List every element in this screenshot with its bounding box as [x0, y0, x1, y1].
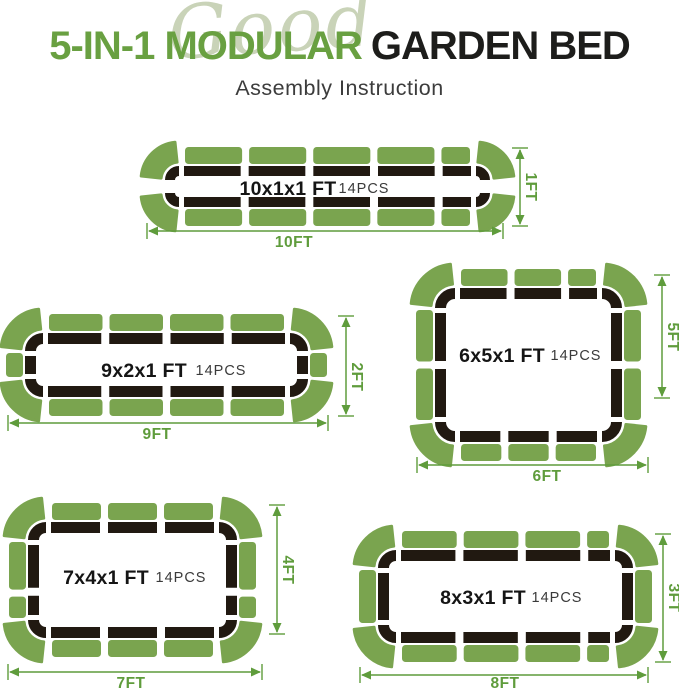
v-dimension-arrow: 3FT: [655, 534, 679, 662]
arrowhead: [273, 506, 282, 516]
dimension-label: 6FT: [532, 468, 561, 485]
bottom-panel: [231, 399, 285, 416]
frame-corner: [170, 193, 179, 202]
arrowhead: [342, 317, 351, 327]
dimension-label: 7FT: [116, 675, 145, 690]
right-panel: [624, 369, 641, 421]
arrowhead: [637, 461, 647, 470]
bottom-panel: [249, 209, 306, 226]
bed-size-label: 8x3x1 FT: [440, 587, 526, 609]
arrowhead: [516, 149, 525, 159]
bed-pcs-label: 14PCS: [551, 348, 602, 364]
frame-corner: [290, 339, 303, 352]
bottom-panel: [185, 209, 242, 226]
frame-corner: [384, 625, 397, 638]
bed-diagram-9x2x1: 9x2x1 FT14PCS9FT2FT: [1, 309, 365, 443]
dimension-label: 2FT: [348, 362, 365, 391]
right-panel: [239, 542, 256, 590]
top-panel: [402, 531, 457, 548]
frame-corner: [441, 294, 456, 309]
arrowhead: [658, 276, 667, 286]
bed-diagram-6x5x1: 6x5x1 FT14PCS6FT5FT: [411, 264, 679, 485]
right-panel: [239, 597, 256, 618]
frame-corner: [219, 528, 232, 541]
frame-corner: [476, 171, 485, 180]
left-panel: [9, 542, 26, 590]
bottom-panel: [508, 444, 548, 461]
left-panel: [416, 369, 433, 421]
arrowhead: [273, 623, 282, 633]
bottom-panel: [402, 645, 457, 662]
bottom-panel: [52, 640, 101, 657]
h-dimension-arrow: 10FT: [147, 223, 503, 251]
arrowhead: [317, 419, 327, 428]
dimension-label: 5FT: [664, 322, 679, 351]
left-panel: [9, 597, 26, 618]
arrowhead: [658, 387, 667, 397]
bottom-panel: [110, 399, 164, 416]
frame-corner: [615, 625, 628, 638]
garden-bed-instruction-sheet: Good 5-IN-1 MODULARGARDEN BED Assembly I…: [0, 0, 679, 690]
frame-corner: [31, 339, 44, 352]
right-panel: [624, 310, 641, 362]
bottom-panel: [461, 444, 501, 461]
arrowhead: [342, 405, 351, 415]
bed-diagram-8x3x1: 8x3x1 FT14PCS8FT3FT: [354, 526, 679, 690]
top-panel: [525, 531, 580, 548]
top-panel: [587, 531, 609, 548]
bed-size-label: 7x4x1 FT: [63, 567, 149, 589]
arrowhead: [659, 651, 668, 661]
dimension-label: 8FT: [490, 675, 519, 690]
bed-pcs-label: 14PCS: [532, 590, 583, 606]
bottom-panel: [441, 209, 470, 226]
bed-size-label: 9x2x1 FT: [101, 360, 187, 382]
arrowhead: [251, 668, 261, 677]
right-panel: [310, 353, 327, 377]
left-panel: [416, 310, 433, 362]
left-panel: [359, 570, 376, 623]
frame-corner: [34, 528, 47, 541]
page-title: 5-IN-1 MODULARGARDEN BED: [0, 26, 679, 66]
top-panel: [49, 314, 103, 331]
frame-corner: [602, 294, 617, 309]
frame-corner: [602, 422, 617, 437]
frame-corner: [476, 193, 485, 202]
h-dimension-arrow: 9FT: [8, 415, 328, 443]
bottom-panel: [587, 645, 609, 662]
bottom-panel: [377, 209, 434, 226]
bottom-panel: [49, 399, 103, 416]
frame-corner: [290, 379, 303, 392]
arrowhead: [637, 671, 647, 680]
top-panel: [249, 147, 306, 164]
frame-corner: [34, 620, 47, 633]
top-panel: [164, 503, 213, 520]
dimension-label: 1FT: [522, 172, 539, 201]
bottom-panel: [556, 444, 596, 461]
bottom-panel: [170, 399, 224, 416]
top-panel: [568, 269, 596, 286]
top-panel: [377, 147, 434, 164]
bed-pcs-label: 14PCS: [339, 181, 390, 197]
title-garden-bed-text: GARDEN BED: [371, 24, 630, 68]
v-dimension-arrow: 4FT: [269, 505, 296, 634]
bottom-panel: [108, 640, 157, 657]
dimension-label: 10FT: [275, 234, 313, 251]
top-panel: [185, 147, 242, 164]
top-panel: [441, 147, 470, 164]
right-panel: [635, 570, 652, 623]
dimension-label: 9FT: [142, 426, 171, 443]
bed-pcs-label: 14PCS: [156, 570, 207, 586]
frame-corner: [170, 171, 179, 180]
top-panel: [110, 314, 164, 331]
top-panel: [515, 269, 562, 286]
frame-corner: [219, 620, 232, 633]
top-panel: [231, 314, 285, 331]
arrowhead: [9, 419, 19, 428]
v-dimension-arrow: 5FT: [654, 275, 679, 398]
bed-diagram-10x1x1: 10x1x1 FT14PCS10FT1FT: [141, 142, 539, 251]
arrowhead: [418, 461, 428, 470]
arrowhead: [516, 215, 525, 225]
bottom-panel: [464, 645, 519, 662]
title-modular-text: 5-IN-1 MODULAR: [49, 24, 362, 68]
frame-corner: [31, 379, 44, 392]
top-panel: [170, 314, 224, 331]
bottom-panel: [164, 640, 213, 657]
top-panel: [461, 269, 508, 286]
bottom-panel: [313, 209, 370, 226]
page-subtitle: Assembly Instruction: [0, 76, 679, 101]
bed-diagrams: 10x1x1 FT14PCS10FT1FT9x2x1 FT14PCS9FT2FT…: [0, 0, 679, 690]
top-panel: [108, 503, 157, 520]
dimension-label: 3FT: [665, 583, 679, 612]
arrowhead: [659, 535, 668, 545]
bed-pcs-label: 14PCS: [196, 363, 247, 379]
v-dimension-arrow: 2FT: [338, 316, 365, 416]
top-panel: [313, 147, 370, 164]
frame-corner: [615, 556, 628, 569]
frame-corner: [384, 556, 397, 569]
arrowhead: [148, 227, 158, 236]
arrowhead: [9, 668, 19, 677]
bed-size-label: 6x5x1 FT: [459, 345, 545, 367]
arrowhead: [361, 671, 371, 680]
top-panel: [464, 531, 519, 548]
h-dimension-arrow: 7FT: [8, 664, 262, 690]
dimension-label: 4FT: [279, 555, 296, 584]
left-panel: [6, 353, 23, 377]
bed-size-label: 10x1x1 FT: [239, 178, 336, 200]
bed-diagram-7x4x1: 7x4x1 FT14PCS7FT4FT: [4, 498, 296, 690]
h-dimension-arrow: 8FT: [360, 667, 648, 690]
frame-corner: [441, 422, 456, 437]
arrowhead: [492, 227, 502, 236]
bottom-panel: [525, 645, 580, 662]
top-panel: [52, 503, 101, 520]
v-dimension-arrow: 1FT: [512, 148, 539, 226]
